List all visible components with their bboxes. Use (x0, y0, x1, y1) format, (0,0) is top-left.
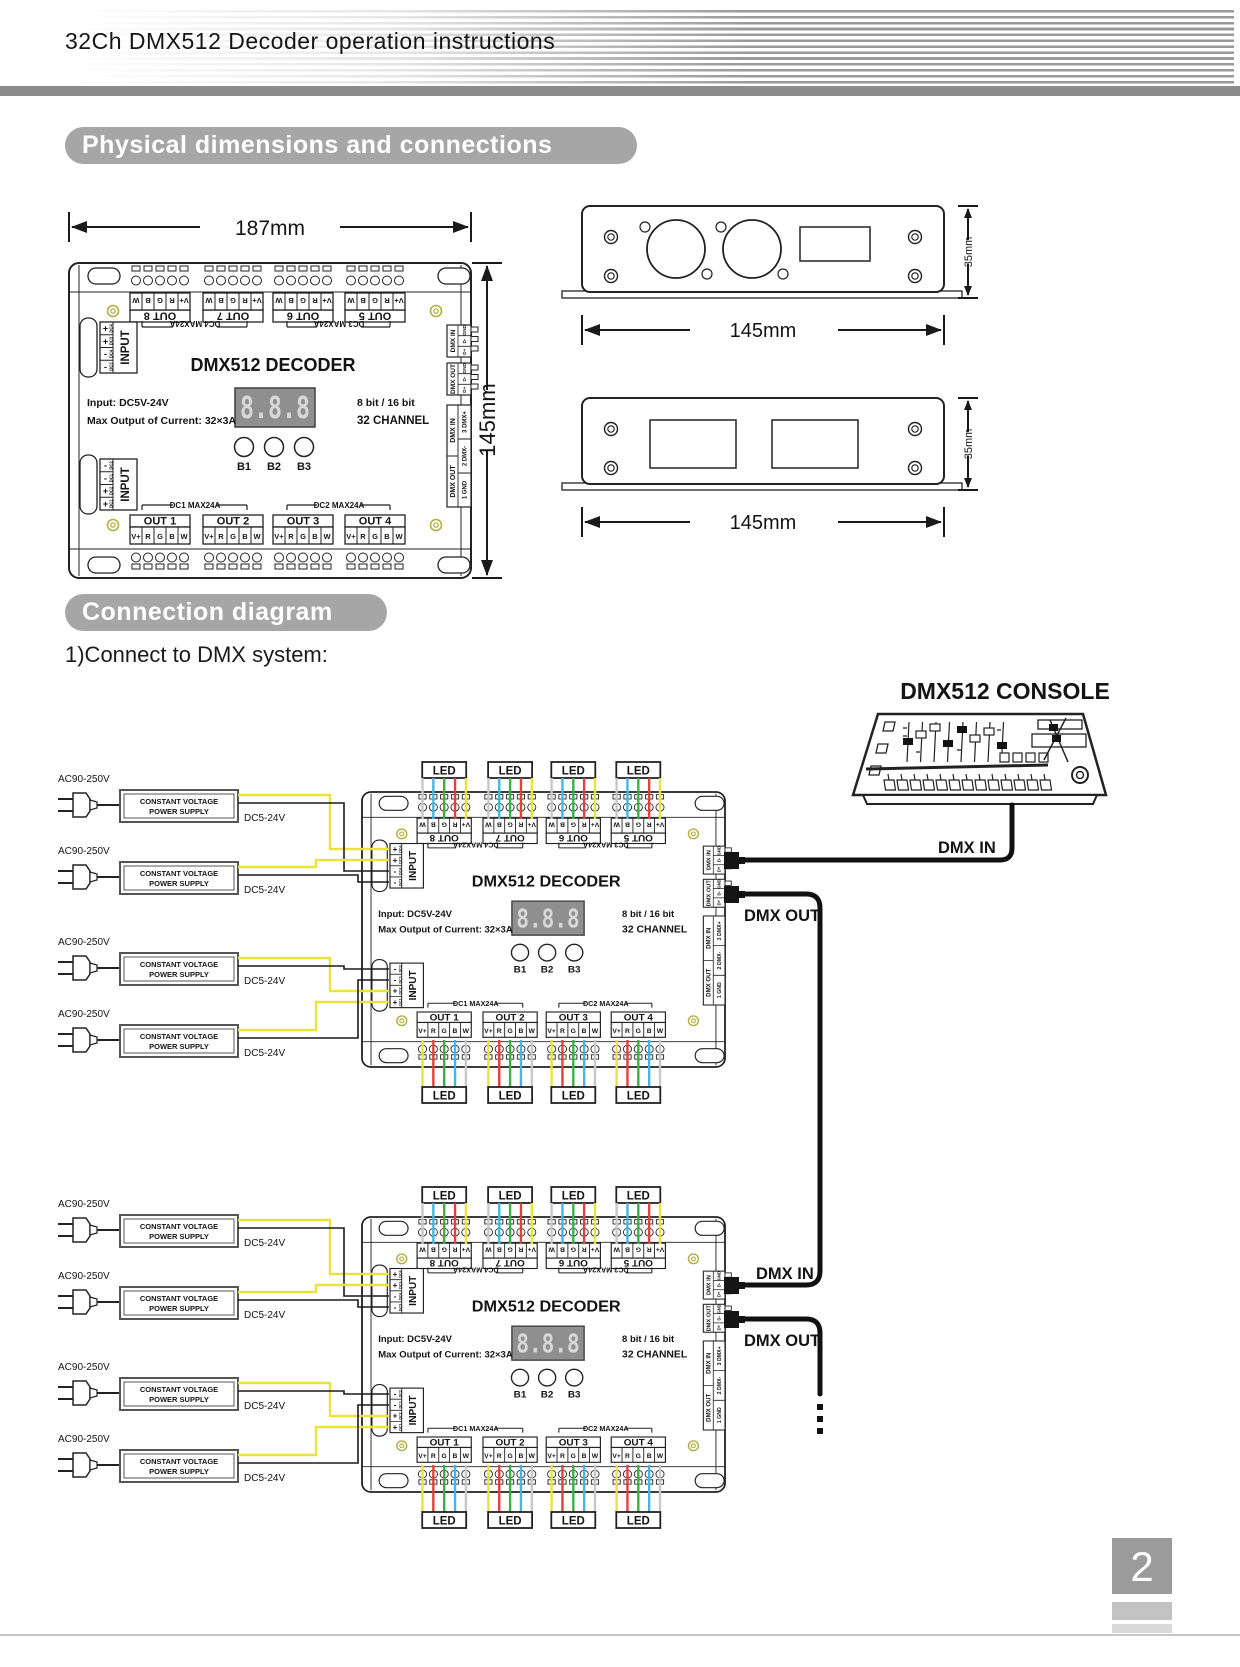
dmx-console: DMX512 CONSOLE (853, 678, 1110, 804)
connection-decoder-2 (362, 1217, 731, 1492)
side-height-dimension: 35mm (963, 237, 975, 268)
side-width-dimension: 145mm (730, 320, 797, 342)
page-bottom-rule (0, 1634, 1240, 1636)
width-dimension: 187mm (235, 217, 305, 240)
dmx-out-cable-label: DMX OUT (744, 907, 820, 925)
dmx-in-cable-label: DMX IN (756, 1265, 814, 1283)
height-dimension: 145mm (475, 383, 500, 456)
cutout-window (650, 420, 736, 468)
side-width-dimension: 145mm (730, 512, 797, 534)
footer-bar (1112, 1602, 1172, 1620)
xlr-connector (647, 220, 705, 278)
console-title: DMX512 CONSOLE (900, 678, 1110, 704)
decoder2-out-cable (740, 1319, 820, 1394)
top-view-drawing: 187mm 145mm (69, 212, 502, 578)
dmx-cabling: DMX IN DMX OUT DMX IN DMX OUT (740, 805, 1012, 1434)
dmx-out-cable-label: DMX OUT (744, 1332, 820, 1350)
side-height-dimension: 35mm (963, 429, 975, 460)
connection-decoder-1 (362, 792, 731, 1067)
front-view-drawing: 35mm 145mm (562, 206, 978, 345)
footer-bar (1112, 1624, 1172, 1633)
console-display (1038, 720, 1082, 729)
decoder1-to-decoder2-cable (740, 894, 820, 1285)
page-number: 2 (1112, 1538, 1172, 1594)
xlr-connector (723, 220, 781, 278)
cutout-window (772, 420, 858, 468)
rear-view-drawing: 35mm 145mm (562, 398, 978, 537)
dmx-in-cable-label: DMX IN (938, 839, 996, 857)
display-window (800, 227, 870, 261)
diagram-canvas: V+ R G B W LED AC90-250V (0, 0, 1240, 1667)
